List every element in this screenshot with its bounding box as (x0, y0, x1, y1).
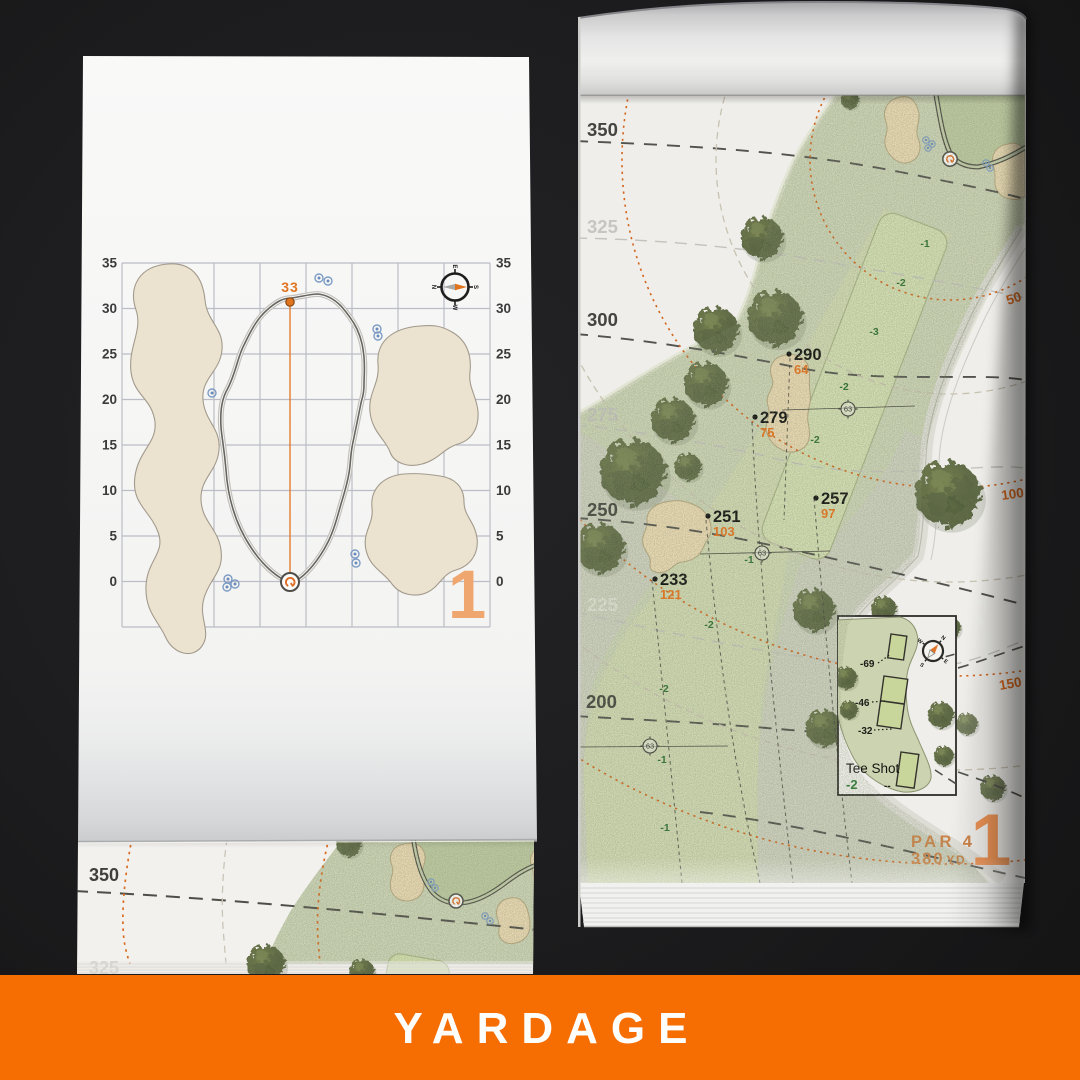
svg-text:20: 20 (102, 392, 117, 407)
svg-text:1: 1 (448, 556, 486, 633)
svg-text:E: E (451, 264, 457, 268)
svg-text:350: 350 (587, 119, 618, 140)
svg-text:--: -- (884, 781, 891, 792)
svg-text:30: 30 (102, 301, 117, 316)
svg-text:30: 30 (496, 301, 511, 316)
svg-text:W: W (451, 305, 457, 311)
svg-text:35: 35 (496, 256, 512, 271)
svg-text:N: N (430, 285, 436, 289)
svg-text:0: 0 (496, 574, 504, 589)
svg-text:20: 20 (496, 392, 511, 407)
svg-text:-69: -69 (860, 659, 875, 670)
svg-text:300: 300 (587, 309, 618, 330)
svg-text:15: 15 (102, 438, 118, 453)
svg-text:325: 325 (587, 216, 618, 237)
svg-text:15: 15 (496, 438, 512, 453)
svg-text:33: 33 (281, 279, 299, 295)
svg-text:5: 5 (109, 529, 117, 544)
svg-text:-32: -32 (858, 726, 873, 737)
svg-text:YARDAGE: YARDAGE (394, 1004, 701, 1053)
svg-text:S: S (472, 285, 478, 289)
svg-text:0: 0 (109, 574, 117, 589)
svg-text:35: 35 (102, 256, 118, 271)
svg-text:350: 350 (89, 865, 119, 885)
svg-text:10: 10 (102, 483, 117, 498)
svg-text:25: 25 (496, 347, 512, 362)
svg-text:5: 5 (496, 529, 504, 544)
svg-text:25: 25 (102, 347, 118, 362)
svg-text:10: 10 (496, 483, 511, 498)
